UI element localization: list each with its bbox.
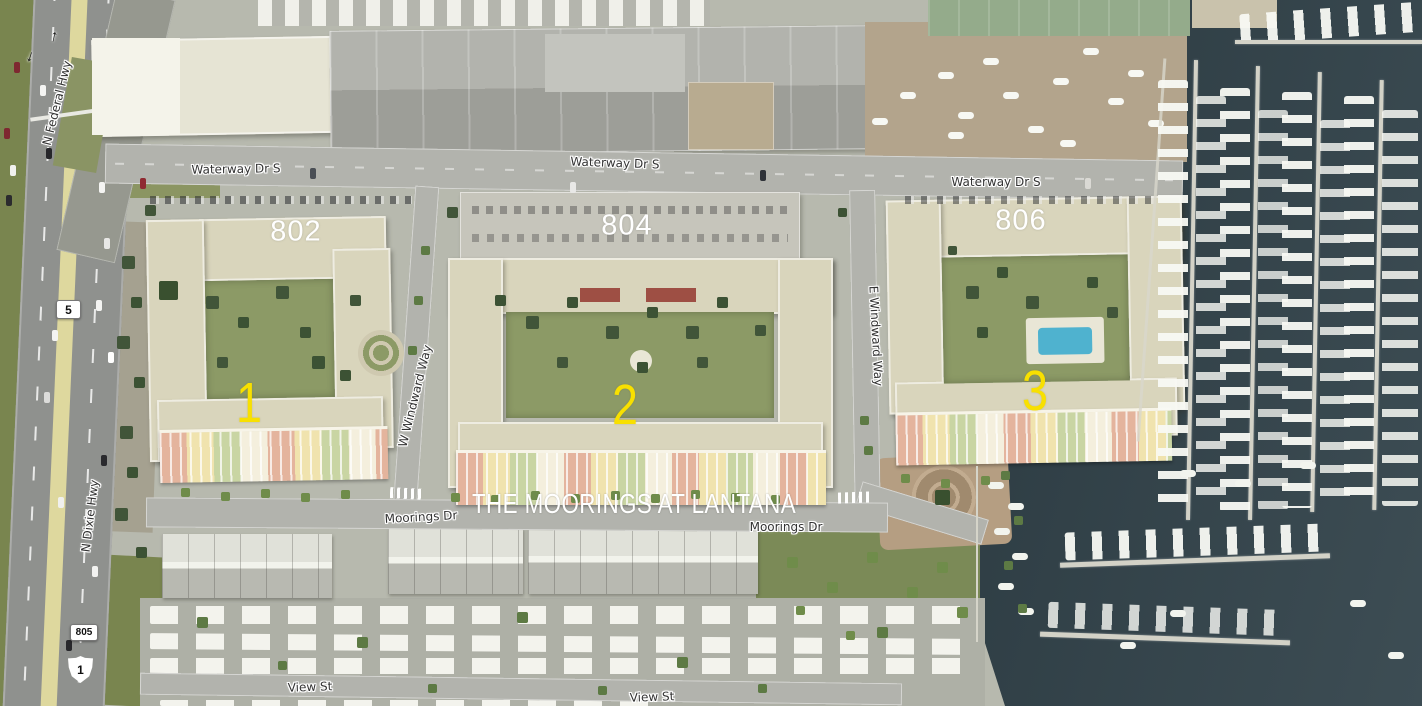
roof-804-north [448, 258, 833, 314]
phase-number-2: 2 [612, 372, 638, 438]
red-tile-accent-1 [580, 288, 620, 302]
building-number-802: 802 [270, 216, 321, 249]
red-tile-accent-2 [646, 288, 696, 302]
route-5-number: 5 [65, 303, 72, 317]
green-roof-building [928, 0, 1190, 36]
phase-number-1: 1 [236, 370, 262, 436]
crosswalk-windward [390, 487, 425, 500]
route-805-number: 805 [76, 627, 93, 638]
aerial-map-canvas[interactable]: 5 805 1 ↑ ↓ N Federal Hwy Waterway Dr S … [0, 0, 1422, 706]
trees-palms [0, 0, 1, 1]
boat-slips-4e [1382, 110, 1418, 506]
boat-slips-2w [1220, 88, 1250, 512]
parked-cars-row-east [905, 196, 1155, 204]
parked-cars-row-west [150, 196, 412, 204]
boat-slips-3w [1282, 92, 1312, 508]
mobile-home-row-1 [150, 606, 970, 624]
warehouse-light-section [545, 34, 685, 92]
fountain-804 [630, 350, 652, 372]
townhome-row-west [162, 534, 332, 598]
pier-topright [1235, 40, 1422, 44]
crosswalk-moorings [838, 491, 872, 503]
vehicles [0, 0, 6, 11]
street-label-waterway-dr-s-east: Waterway Dr S [951, 175, 1040, 189]
boat-slips-4w [1344, 96, 1374, 506]
boatyard-dirt [865, 22, 1187, 162]
street-label-moorings-dr-east: Moorings Dr [750, 520, 823, 534]
street-label-view-st-west: View St [287, 679, 332, 695]
garden-circle-802 [358, 330, 404, 376]
townhome-row-east [528, 526, 758, 594]
warehouse-cream-white-roof [92, 38, 180, 135]
building-number-806: 806 [995, 205, 1046, 238]
townhome-row-mid [388, 528, 523, 594]
street-label-view-st-east: View St [629, 689, 674, 705]
boat-slips-1w [1158, 80, 1188, 510]
boat-rack-row-top [258, 0, 710, 26]
complex-title-overlay: THE MOORINGS AT LANTANA [472, 488, 796, 520]
canal-seawall-west [976, 466, 978, 642]
route-shield-5: 5 [56, 300, 81, 319]
route-shield-805: 805 [70, 624, 98, 641]
courtyard-802 [205, 279, 335, 399]
phase-number-3: 3 [1022, 358, 1048, 424]
warehouse-tan [688, 82, 774, 150]
mobile-home-row-3 [150, 658, 970, 674]
facade-802-south [159, 426, 388, 483]
building-number-804: 804 [601, 210, 652, 243]
pool-806 [1038, 327, 1092, 355]
street-label-waterway-dr-s-west: Waterway Dr S [191, 161, 280, 177]
route-1-number: 1 [77, 663, 84, 677]
